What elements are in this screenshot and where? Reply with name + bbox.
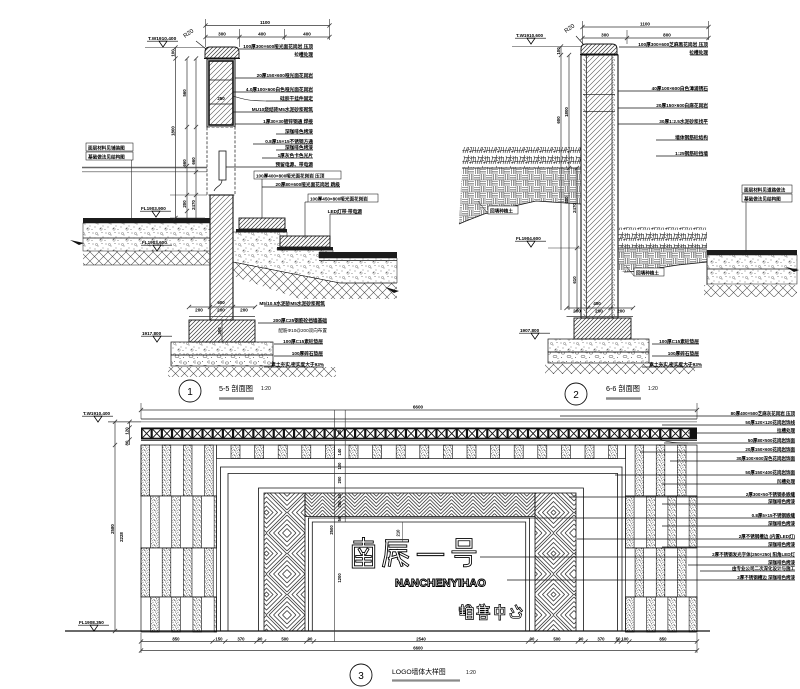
svg-text:80: 80 <box>124 440 129 445</box>
svg-text:50厚120×120花岗岩饰线: 50厚120×120花岗岩饰线 <box>745 419 795 426</box>
svg-text:200: 200 <box>573 309 581 314</box>
svg-text:560: 560 <box>182 89 187 97</box>
svg-text:深咖啡色烤漆: 深咖啡色烤漆 <box>285 144 313 151</box>
svg-text:90: 90 <box>579 637 584 642</box>
svg-text:T.W1910.600: T.W1910.600 <box>516 33 544 38</box>
svg-text:660: 660 <box>182 159 187 167</box>
svg-text:200: 200 <box>182 200 187 208</box>
svg-text:50: 50 <box>616 637 621 642</box>
svg-text:2厚300×50不锈钢条嵌缝: 2厚300×50不锈钢条嵌缝 <box>746 491 796 498</box>
svg-text:2厚不锈钢槽边 深咖啡色烤漆: 2厚不锈钢槽边 深咖啡色烤漆 <box>737 574 795 581</box>
svg-text:0.8厚5×15不锈钢嵌缝: 0.8厚5×15不锈钢嵌缝 <box>752 512 796 519</box>
svg-text:深咖啡色烤漆: 深咖啡色烤漆 <box>768 520 795 527</box>
svg-text:1: 1 <box>187 387 193 398</box>
svg-text:100: 100 <box>170 49 175 57</box>
svg-text:6600: 6600 <box>413 646 423 651</box>
svg-text:素土夯实,密实度大于93%: 素土夯实,密实度大于93% <box>649 361 703 368</box>
svg-text:100厚碎石垫层: 100厚碎石垫层 <box>292 350 324 357</box>
svg-text:2540: 2540 <box>416 637 426 642</box>
svg-text:250: 250 <box>217 96 225 101</box>
svg-text:40厚100×600白色漳浦锈石: 40厚100×600白色漳浦锈石 <box>652 85 709 92</box>
svg-text:1800: 1800 <box>170 126 175 136</box>
svg-text:1100: 1100 <box>260 20 270 25</box>
svg-text:LOGO墙体大样图: LOGO墙体大样图 <box>392 667 446 676</box>
svg-text:350: 350 <box>217 327 222 335</box>
svg-text:FL1903.900: FL1903.900 <box>141 206 166 211</box>
svg-text:100厚300×600哑光面花岗岩 压顶: 100厚300×600哑光面花岗岩 压顶 <box>243 43 313 50</box>
svg-text:100: 100 <box>337 462 342 470</box>
svg-text:20厚150×600白麻花岗岩: 20厚150×600白麻花岗岩 <box>656 102 708 109</box>
svg-text:1厚灰色卡色光片: 1厚灰色卡色光片 <box>278 152 314 159</box>
svg-text:6-6 剖面图: 6-6 剖面图 <box>606 384 640 393</box>
svg-text:回填种植土: 回填种植土 <box>636 270 659 277</box>
svg-text:FL1904.600: FL1904.600 <box>516 236 541 241</box>
svg-text:800: 800 <box>663 33 671 38</box>
svg-text:面层材料见铺装图: 面层材料见铺装图 <box>88 145 125 152</box>
svg-text:850: 850 <box>659 637 667 642</box>
svg-text:配筋Φ10@200双向布置: 配筋Φ10@200双向布置 <box>278 327 327 334</box>
svg-text:1:20: 1:20 <box>261 386 271 392</box>
svg-text:120: 120 <box>124 427 129 435</box>
svg-text:2: 2 <box>573 390 579 401</box>
svg-text:140: 140 <box>337 448 342 456</box>
svg-text:100: 100 <box>621 637 629 642</box>
svg-text:200: 200 <box>617 309 625 314</box>
svg-text:610: 610 <box>572 276 577 284</box>
svg-text:素土夯实,密实度大于93%: 素土夯实,密实度大于93% <box>271 361 325 368</box>
svg-text:4.0厚100×600白色哑光面花岗岩: 4.0厚100×600白色哑光面花岗岩 <box>246 86 313 93</box>
svg-text:90: 90 <box>530 637 535 642</box>
svg-text:拉槽处理: 拉槽处理 <box>689 49 708 56</box>
svg-text:2228: 2228 <box>119 532 124 542</box>
svg-text:深咖啡色烤漆: 深咖啡色烤漆 <box>285 128 313 135</box>
svg-text:600: 600 <box>556 116 561 124</box>
svg-text:回填种植土: 回填种植土 <box>490 208 513 215</box>
svg-text:50厚80×500花岗岩饰面: 50厚80×500花岗岩饰面 <box>748 437 796 444</box>
svg-text:2470: 2470 <box>191 200 196 210</box>
svg-text:T.W1910.400: T.W1910.400 <box>83 411 111 416</box>
svg-text:90: 90 <box>258 637 263 642</box>
svg-text:100厚C15素砼垫层: 100厚C15素砼垫层 <box>283 338 323 345</box>
svg-text:1:20: 1:20 <box>466 670 476 676</box>
svg-text:6600: 6600 <box>413 405 424 410</box>
svg-text:2470: 2470 <box>572 203 577 213</box>
svg-text:200: 200 <box>595 309 603 314</box>
svg-text:100: 100 <box>556 47 561 55</box>
svg-text:400: 400 <box>258 32 266 37</box>
svg-text:1厚30×30镀锌钢通 焊接: 1厚30×30镀锌钢通 焊接 <box>263 118 313 125</box>
svg-text:660: 660 <box>191 157 196 165</box>
svg-text:200: 200 <box>217 308 225 313</box>
svg-text:20厚80×600哑光面花岗岩 跳级: 20厚80×600哑光面花岗岩 跳级 <box>276 181 341 188</box>
svg-text:1917.800: 1917.800 <box>142 331 162 336</box>
svg-text:600: 600 <box>217 300 225 305</box>
svg-text:深咖啡色烤漆: 深咖啡色烤漆 <box>768 559 795 566</box>
svg-text:1907.800: 1907.800 <box>520 328 540 333</box>
svg-text:100厚碎石垫层: 100厚碎石垫层 <box>668 350 700 357</box>
svg-text:基础做法见结构图: 基础做法见结构图 <box>87 154 125 161</box>
svg-text:200厚C25钢筋砼挡墙基础: 200厚C25钢筋砼挡墙基础 <box>273 317 327 324</box>
svg-text:370: 370 <box>237 637 245 642</box>
svg-text:MU10烧结砖M5水泥砂浆砌筑: MU10烧结砖M5水泥砂浆砌筑 <box>252 106 314 113</box>
svg-text:2厚不锈钢发光字体(250×250) 阳角LED灯: 2厚不锈钢发光字体(250×250) 阳角LED灯 <box>712 551 795 558</box>
svg-text:50: 50 <box>337 493 342 498</box>
svg-text:1100: 1100 <box>640 22 650 27</box>
svg-text:80: 80 <box>337 429 342 434</box>
svg-text:1800: 1800 <box>564 107 569 117</box>
svg-text:LED灯带·带电源: LED灯带·带电源 <box>328 208 363 215</box>
svg-text:30厚100×600深色花岗岩饰面: 30厚100×600深色花岗岩饰面 <box>736 455 795 462</box>
svg-text:1:25钢筋砼挡墙: 1:25钢筋砼挡墙 <box>675 150 708 157</box>
svg-text:400: 400 <box>303 32 311 37</box>
svg-text:100厚450×800哑光面花岗岩: 100厚450×800哑光面花岗岩 <box>310 196 368 203</box>
svg-text:210: 210 <box>396 529 401 537</box>
svg-text:200: 200 <box>240 308 248 313</box>
svg-text:面层材料见道路做法: 面层材料见道路做法 <box>744 187 786 194</box>
svg-text:500: 500 <box>281 637 289 642</box>
svg-text:20厚150×600哑光面花岗岩: 20厚150×600哑光面花岗岩 <box>257 72 314 79</box>
svg-text:墙体钢筋砼结构: 墙体钢筋砼结构 <box>675 134 708 141</box>
svg-text:370: 370 <box>597 637 605 642</box>
svg-text:预留电源、带电源: 预留电源、带电源 <box>275 161 313 168</box>
svg-text:由专业公司二次深化设计与施工: 由专业公司二次深化设计与施工 <box>732 565 795 572</box>
svg-text:3: 3 <box>358 671 364 682</box>
svg-text:200: 200 <box>195 308 203 313</box>
svg-text:拉槽处理: 拉槽处理 <box>294 51 313 58</box>
svg-text:300: 300 <box>601 33 609 38</box>
svg-text:90: 90 <box>308 637 313 642</box>
svg-text:基础做法见结构图: 基础做法见结构图 <box>743 196 781 203</box>
svg-text:硅胶干挂件固定: 硅胶干挂件固定 <box>280 95 313 102</box>
svg-text:150: 150 <box>215 637 223 642</box>
svg-text:500: 500 <box>553 637 561 642</box>
svg-text:50: 50 <box>337 516 342 521</box>
svg-text:NANCHENYIHAO: NANCHENYIHAO <box>395 578 486 590</box>
svg-text:深咖啡色烤漆: 深咖啡色烤漆 <box>768 498 795 505</box>
svg-text:100厚400×800哑光面花岗岩 压顶: 100厚400×800哑光面花岗岩 压顶 <box>256 173 325 180</box>
svg-text:20厚150×600花岗岩饰面: 20厚150×600花岗岩饰面 <box>745 446 795 453</box>
svg-text:FL1908.350: FL1908.350 <box>79 620 104 625</box>
svg-text:200: 200 <box>337 476 342 484</box>
svg-text:凹槽处理: 凹槽处理 <box>777 478 795 485</box>
svg-text:30厚1:2.5水泥砂浆找平: 30厚1:2.5水泥砂浆找平 <box>659 118 708 125</box>
svg-text:2500: 2500 <box>329 525 334 535</box>
svg-text:250: 250 <box>337 500 342 508</box>
svg-text:5-5 剖面图: 5-5 剖面图 <box>219 384 253 393</box>
svg-text:1:20: 1:20 <box>648 386 658 392</box>
svg-text:850: 850 <box>172 637 180 642</box>
svg-text:600: 600 <box>564 196 569 204</box>
svg-text:100厚300×600芝麻黑花岗岩 压顶: 100厚300×600芝麻黑花岗岩 压顶 <box>638 41 708 48</box>
svg-text:FL1903.600: FL1903.600 <box>142 240 167 245</box>
svg-text:拉槽处理: 拉槽处理 <box>777 427 795 434</box>
svg-text:0.8厚15×15不锈钢方通: 0.8厚15×15不锈钢方通 <box>265 138 313 145</box>
svg-text:2厚不锈钢槽边 (内置LED灯): 2厚不锈钢槽边 (内置LED灯) <box>739 533 796 540</box>
svg-text:100厚C15素砼垫层: 100厚C15素砼垫层 <box>659 338 699 345</box>
svg-text:400: 400 <box>593 301 601 306</box>
svg-text:深咖啡色烤漆: 深咖啡色烤漆 <box>768 541 795 548</box>
svg-text:50厚150×400花岗岩饰面: 50厚150×400花岗岩饰面 <box>745 469 795 476</box>
svg-text:1200: 1200 <box>337 573 342 583</box>
svg-text:80厚400×500芝麻灰花岗岩 压顶: 80厚400×500芝麻灰花岗岩 压顶 <box>731 410 796 417</box>
svg-text:2580: 2580 <box>110 524 115 534</box>
svg-text:300: 300 <box>218 32 226 37</box>
svg-text:M5/10.5水泥砂M5水泥砂浆砌筑: M5/10.5水泥砂M5水泥砂浆砌筑 <box>259 300 325 307</box>
